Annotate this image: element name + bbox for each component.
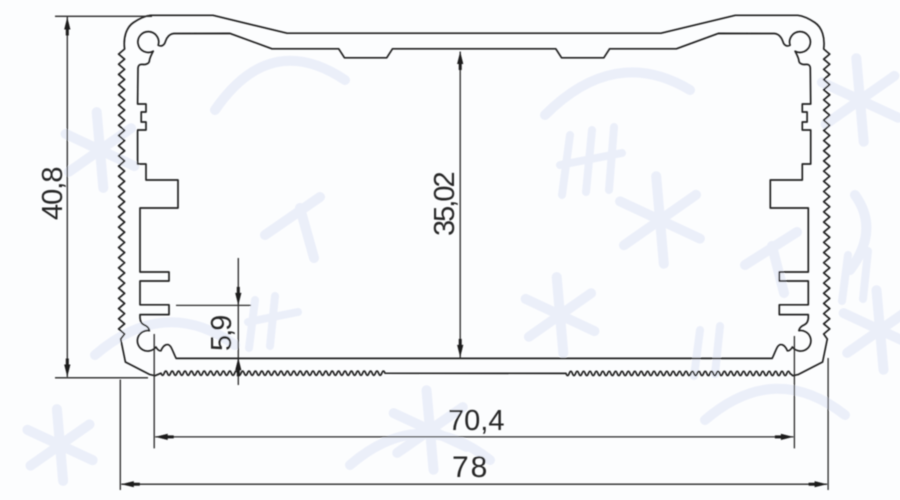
svg-text:78: 78: [452, 451, 489, 484]
svg-text:40,8: 40,8: [37, 168, 69, 220]
svg-text:70,4: 70,4: [448, 405, 504, 437]
svg-text:5,9: 5,9: [206, 316, 238, 351]
svg-text:35,02: 35,02: [429, 173, 461, 236]
